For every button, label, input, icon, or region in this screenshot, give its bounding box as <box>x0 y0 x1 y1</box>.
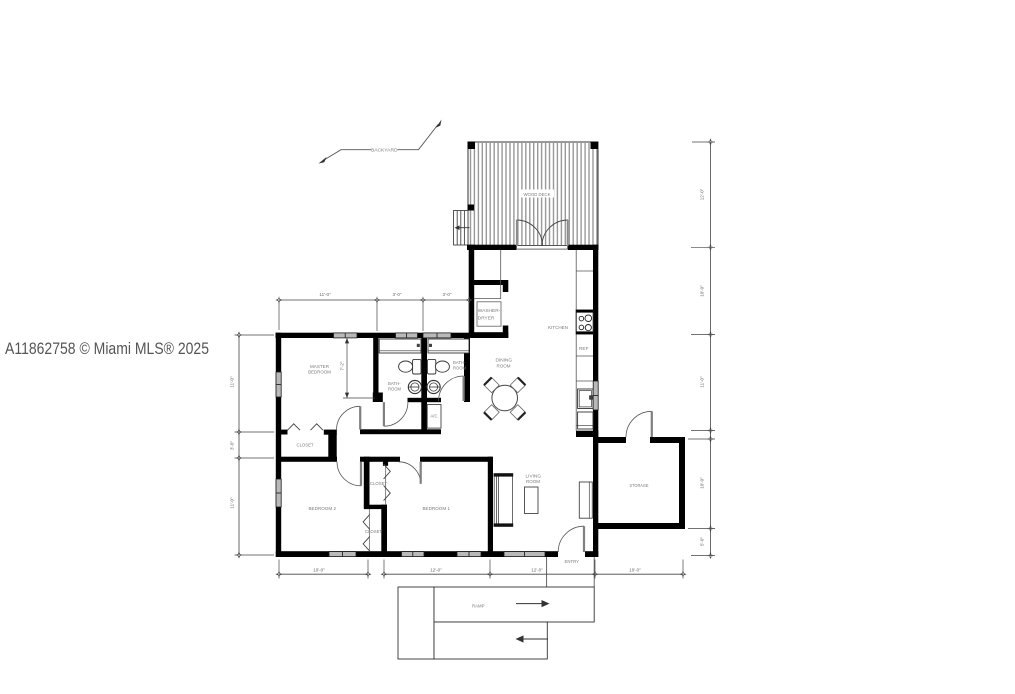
svg-text:ROOM: ROOM <box>526 479 540 484</box>
svg-text:11'-0": 11'-0" <box>319 292 331 297</box>
svg-text:3'-0": 3'-0" <box>393 292 402 297</box>
svg-text:DRYER: DRYER <box>478 316 495 321</box>
svg-text:3'-0": 3'-0" <box>443 292 452 297</box>
svg-text:A/C: A/C <box>431 414 439 419</box>
svg-text:A11862758 © Miami MLS® 2025: A11862758 © Miami MLS® 2025 <box>5 339 209 358</box>
svg-text:5'-0": 5'-0" <box>700 537 705 546</box>
svg-text:12'-0": 12'-0" <box>430 568 442 573</box>
svg-text:11'-0": 11'-0" <box>230 376 235 388</box>
svg-text:ROOM: ROOM <box>453 365 466 370</box>
svg-text:ROOM: ROOM <box>388 386 401 391</box>
svg-text:REF: REF <box>579 346 589 351</box>
svg-text:10'-0": 10'-0" <box>629 568 641 573</box>
svg-text:BATH-: BATH- <box>388 381 401 386</box>
svg-text:BACKYARD: BACKYARD <box>371 148 398 153</box>
svg-text:STORAGE: STORAGE <box>630 483 649 488</box>
svg-text:LIVING: LIVING <box>526 473 542 478</box>
svg-text:CLOSET: CLOSET <box>365 529 382 534</box>
svg-text:7'-2": 7'-2" <box>340 361 345 370</box>
svg-text:ENTRY: ENTRY <box>565 559 580 564</box>
svg-text:11'-0": 11'-0" <box>230 497 235 509</box>
svg-text:CLOSET: CLOSET <box>370 481 387 486</box>
svg-text:BEDROOM 2: BEDROOM 2 <box>309 506 337 511</box>
svg-text:RAMP: RAMP <box>472 604 485 609</box>
svg-text:BEDROOM: BEDROOM <box>308 370 331 375</box>
svg-text:BATH-: BATH- <box>453 360 466 365</box>
svg-text:3'-0": 3'-0" <box>230 441 235 450</box>
svg-text:BEDROOM 1: BEDROOM 1 <box>423 506 451 511</box>
svg-text:12'-0": 12'-0" <box>531 568 543 573</box>
svg-text:ROOM: ROOM <box>497 363 511 368</box>
svg-text:WOOD DECK: WOOD DECK <box>524 192 552 197</box>
svg-text:DINING: DINING <box>496 358 513 363</box>
svg-text:10'-0": 10'-0" <box>313 568 325 573</box>
svg-text:MASTER: MASTER <box>310 364 330 369</box>
svg-text:WASHER-: WASHER- <box>478 308 501 313</box>
svg-text:10'-0": 10'-0" <box>700 285 705 297</box>
svg-text:KITCHEN: KITCHEN <box>548 325 568 330</box>
svg-text:11'-0": 11'-0" <box>700 376 705 388</box>
svg-text:CLOSET: CLOSET <box>297 442 314 447</box>
svg-text:12'-0": 12'-0" <box>700 188 705 200</box>
svg-text:10'-0": 10'-0" <box>700 477 705 489</box>
